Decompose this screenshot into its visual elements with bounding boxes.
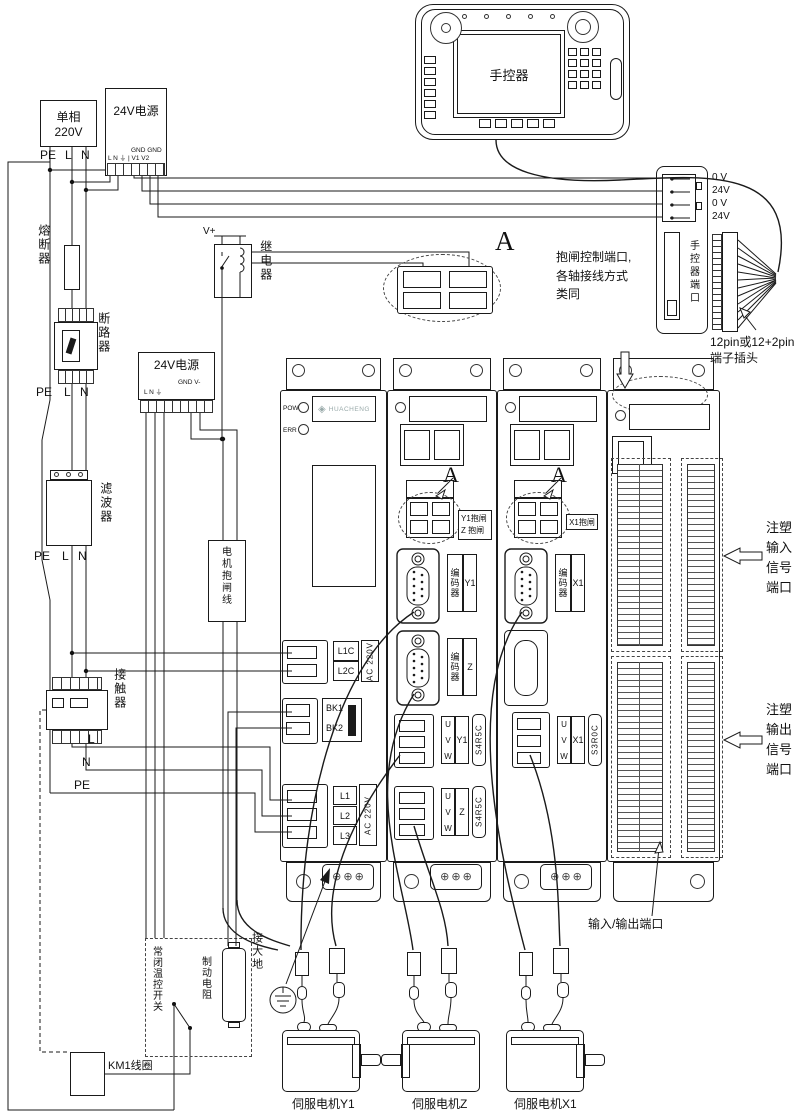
m1-bottom-hole <box>296 874 311 889</box>
port-pin-24v-a: 24V <box>712 185 730 197</box>
psu2-out-label: GND V- <box>178 379 200 386</box>
motor1-plug-a <box>297 986 307 1000</box>
m2-pwr2-u: U <box>442 789 454 805</box>
filter-screw-2 <box>66 472 71 477</box>
m4-mount-hole <box>619 364 632 377</box>
filter-pin-l: L <box>62 550 69 564</box>
filter-screw-3 <box>78 472 83 477</box>
m3-blank-cutout <box>514 640 538 696</box>
m4-output-strip-l <box>617 662 663 852</box>
motor2-power-connector <box>407 952 421 976</box>
m3-pwr1-v: V <box>558 733 570 749</box>
m2-mount-hole-r <box>470 364 483 377</box>
m2-pwr2-v: V <box>442 805 454 821</box>
motor2-flange <box>401 1044 410 1078</box>
m3-brake-label: X1抱闸 <box>566 514 598 530</box>
m2-pwr1-w: W <box>442 749 454 765</box>
m3-mount-hole <box>509 364 522 377</box>
m2-pwr2-axis: Z <box>455 788 469 836</box>
mains-pin-pe: PE <box>40 149 56 163</box>
m2-label-plate <box>409 396 487 422</box>
m2-pwr1-model: S4R5C <box>472 714 486 766</box>
mains-pin-n: N <box>81 149 90 163</box>
contactor-label: 接触器 <box>112 668 126 732</box>
psu2-terminal-strip <box>140 400 213 413</box>
m2-brake-ellipse <box>398 492 462 544</box>
m1-bk1-label: BK1 <box>326 703 343 713</box>
m1-mount-hole <box>292 364 305 377</box>
pendant-left-keys <box>424 56 436 119</box>
m4-mount-hole-r <box>692 364 705 377</box>
motor3-encoder-connector <box>553 948 569 974</box>
m2-rj45-pair <box>400 424 464 466</box>
km1-coil-label: KM1线圈 <box>108 1060 153 1073</box>
m2-pwr1-uvw: UVW <box>441 716 455 764</box>
m2-encoder-y1-db9-icon <box>396 548 440 624</box>
motor2-top-face <box>407 1037 475 1045</box>
psu1-title: 24V电源 <box>107 100 165 124</box>
m4-bottom-hole <box>690 874 705 889</box>
km1-coil-box <box>70 1052 105 1096</box>
m3-bottom-hole <box>514 874 529 889</box>
m1-brand-plate: ◈ HUACHENG <box>312 396 376 422</box>
bus-label-l: L <box>88 733 95 747</box>
psu1-pin-labels: L N ⏚ | V1 V2 <box>108 155 149 162</box>
m4-label-plate <box>629 404 710 430</box>
pendant-right-keys <box>568 48 604 89</box>
motor1-encoder-connector <box>329 948 345 974</box>
m2-enc1-axis: Y1 <box>463 554 477 612</box>
motor2-encoder-connector <box>441 948 457 974</box>
detail-a-marker: A <box>495 226 515 257</box>
filter-label: 滤波器 <box>98 482 112 542</box>
m4-output-strip-divider <box>639 662 640 852</box>
breaker-top-terminals <box>58 308 94 322</box>
m1-mains-voltage: AC 220V <box>359 784 377 846</box>
psu1-gnd-label: GND GND <box>131 147 162 154</box>
m4-io-label: 输入/输出端口 <box>588 918 663 932</box>
m4-output-strip-r <box>687 662 715 852</box>
bus-label-pe: PE <box>74 779 90 793</box>
brake-resistor-body <box>222 948 246 1022</box>
brake-cable-label: 电机抱闸线 <box>219 546 231 618</box>
m1-mains-pin1 <box>287 790 317 803</box>
earth-label: 接大地 <box>250 932 263 982</box>
m1-bk-jumper <box>348 705 356 736</box>
mains-pin-l: L <box>65 149 72 163</box>
m3-pwr1-uvw: UVW <box>557 716 571 764</box>
motor1-power-connector <box>295 952 309 976</box>
detail-a-note-1: 抱闸控制端口, <box>556 248 631 267</box>
mode-knob-center <box>441 23 451 33</box>
m3-pwr1-w: W <box>558 749 570 765</box>
plug-note-2: 端子插头 <box>710 350 794 366</box>
m1-mount-hole-r <box>362 364 375 377</box>
m1-ctrl-pin1 <box>287 646 317 659</box>
psu2-title: 24V电源 <box>140 356 213 376</box>
m1-bk-pin1 <box>286 704 310 717</box>
relay-box <box>214 244 252 298</box>
relay-label: 继电器 <box>258 240 272 302</box>
plug-12pin-body <box>722 232 738 332</box>
m3-rj45-pair <box>510 424 574 466</box>
brake-resistor-tab-bottom <box>228 1022 240 1028</box>
plug-note: 12pin或12+2pin 端子插头 <box>710 334 794 366</box>
bus-label-n: N <box>82 756 91 770</box>
m4-input-strip-divider <box>639 464 640 646</box>
motor1-flange <box>352 1044 361 1078</box>
m1-label-area <box>312 465 376 587</box>
pendant-side-wheel <box>610 58 622 100</box>
psu2-pin-labels: L N ⏚ <box>144 389 162 396</box>
motor3-plug-a <box>521 986 531 1000</box>
pendant-screen: 手控器 <box>457 34 561 114</box>
m4-input-strip-r <box>687 464 715 646</box>
m1-pow-label: POW <box>283 405 299 412</box>
m2-plate-screw <box>395 402 406 413</box>
m2-pwr2-model: S4R5C <box>472 786 486 838</box>
m3-ground-plate: ⊕⊕⊕ <box>540 864 592 890</box>
breaker-pin-l: L <box>64 386 71 400</box>
m3-label-plate <box>519 396 597 422</box>
m3-mount-hole-r <box>580 364 593 377</box>
breaker-pin-n: N <box>80 386 89 400</box>
m3-pwr1-plug <box>512 712 550 768</box>
contactor-top-terminals <box>52 677 102 690</box>
m1-bk-pin2 <box>286 722 310 735</box>
m2-encoder-z-db9-icon <box>396 630 440 706</box>
brand-logo-icon: ◈ <box>318 404 326 415</box>
m2-pwr1-u: U <box>442 717 454 733</box>
m4-output-label: 注塑输出信号端口 <box>766 700 796 781</box>
m2-pwr2-w: W <box>442 821 454 837</box>
m1-l2-label: L2 <box>333 806 357 825</box>
m1-l2c-label: L2C <box>333 661 359 681</box>
filter-pin-pe: PE <box>34 550 50 564</box>
m2-ground-plate: ⊕⊕⊕ <box>430 864 482 890</box>
m1-brand-label: HUACHENG <box>329 406 370 413</box>
contactor-body <box>46 690 108 730</box>
rj45-port-icon <box>514 430 540 460</box>
motor2-label: 伺服电机Z <box>412 1098 467 1112</box>
m3-plate-screw <box>505 402 516 413</box>
m3-enc1-axis: X1 <box>571 554 585 612</box>
motor1-plug-b <box>333 982 345 998</box>
m2-brake-label-2: Z 抱闸 <box>461 526 484 535</box>
filter-screw-1 <box>54 472 59 477</box>
m2-enc2-label: 编码器 <box>447 638 463 696</box>
port-pin-0v-a: 0 V <box>712 172 727 184</box>
mains-source-box: 单相 220V <box>40 100 97 147</box>
motor1-shaft <box>361 1054 381 1066</box>
m1-ctrl-pin2 <box>287 664 317 677</box>
m2-pwr1-v: V <box>442 733 454 749</box>
brake-resistor-tab-top <box>228 942 240 948</box>
contactor-detail-2 <box>70 698 88 708</box>
m1-l3-label: L3 <box>333 826 357 845</box>
detail-a-cell-4 <box>449 292 487 309</box>
m3-brake-ellipse <box>506 492 570 544</box>
m1-mains-pin3 <box>287 826 317 839</box>
m1-ctrl-voltage: AC 220V <box>361 640 379 682</box>
rj45-port-icon <box>434 430 460 460</box>
m1-pow-led-icon <box>298 402 309 413</box>
breaker-label: 断路器 <box>96 312 110 374</box>
port-pin-24v-b: 24V <box>712 211 730 223</box>
detail-a-cell-2 <box>449 271 487 288</box>
m2-brake-label-1: Y1抱闸 <box>461 514 487 523</box>
m4-plate-screw <box>615 410 626 421</box>
breaker-pin-pe: PE <box>36 386 52 400</box>
detail-a-note-3: 类同 <box>556 285 631 304</box>
m3-pwr1-model: S3R0C <box>588 714 602 766</box>
motor1-label: 伺服电机Y1 <box>292 1098 355 1112</box>
motor3-label: 伺服电机X1 <box>514 1098 577 1112</box>
motor2-shaft <box>381 1054 401 1066</box>
plug-note-1: 12pin或12+2pin <box>710 334 794 350</box>
relay-vplus-label: V+ <box>203 226 216 238</box>
motor1-top-face <box>287 1037 355 1045</box>
m2-pwr1-axis: Y1 <box>455 716 469 764</box>
panel-slot-notch <box>667 300 677 316</box>
motor3-plug-b <box>557 982 569 998</box>
motor2-plug-b <box>445 982 457 998</box>
m2-pwr1-plug <box>394 714 434 768</box>
filter-pin-n: N <box>78 550 87 564</box>
psu1-terminal-strip <box>107 163 165 176</box>
mains-line1: 单相 <box>56 108 80 125</box>
filter-body <box>46 480 92 546</box>
rj45-port-icon <box>404 430 430 460</box>
m4-input-strip-l <box>617 464 663 646</box>
m1-l1-label: L1 <box>333 786 357 805</box>
rj45-port-icon <box>544 430 570 460</box>
breaker-bottom-terminals <box>58 370 94 384</box>
pendant-screen-label: 手控器 <box>489 65 528 84</box>
m2-pwr2-uvw: UVW <box>441 788 455 836</box>
fuse-label: 熔断器 <box>36 224 50 296</box>
m2-bottom-hole <box>404 874 419 889</box>
m1-bk2-label: BK2 <box>326 723 343 733</box>
m3-pwr1-axis: X1 <box>571 716 585 764</box>
thermal-switch-label: 常闭温控开关 <box>150 946 162 1052</box>
mains-line2: 220V <box>54 125 82 139</box>
m1-err-label: ERR <box>283 427 297 434</box>
m1-mains-pin2 <box>287 808 317 821</box>
contactor-detail-1 <box>52 698 64 708</box>
m1-l1c-label: L1C <box>333 641 359 661</box>
pendant-indicator-row <box>458 14 558 26</box>
detail-a-cell-3 <box>403 292 441 309</box>
pendant-port-4pin-connector <box>662 174 696 222</box>
m2-enc1-label: 编码器 <box>447 554 463 612</box>
m2-mount-hole <box>399 364 412 377</box>
m2-enc2-axis: Z <box>463 638 477 696</box>
pendant-bottom-keys <box>479 119 555 128</box>
motor2-plug-a <box>409 986 419 1000</box>
motor3-top-face <box>511 1037 579 1045</box>
pendant-port-tab-2 <box>696 202 702 210</box>
motor3-power-connector <box>519 952 533 976</box>
motor3-flange <box>576 1044 585 1078</box>
pendant-port-tab-1 <box>696 182 702 190</box>
wiring-diagram: 手控器 单相 220V PE L N 熔断器 断路器 PE L N 滤波器 PE… <box>0 0 800 1117</box>
estop-button-icon <box>575 19 591 35</box>
port-pin-0v-b: 0 V <box>712 198 727 210</box>
pendant-port-label: 手控器端口 <box>687 240 699 328</box>
m1-err-led-icon <box>298 424 309 435</box>
m3-pwr1-u: U <box>558 717 570 733</box>
brake-resistor-label: 制动电阻 <box>199 956 211 1022</box>
motor3-shaft <box>585 1054 605 1066</box>
plug-12pin-teeth <box>712 234 722 330</box>
m2-pwr2-plug <box>394 786 434 840</box>
m3-enc1-label: 编码器 <box>555 554 571 612</box>
detail-a-cell-1 <box>403 271 441 288</box>
detail-a-note: 抱闸控制端口, 各轴接线方式 类同 <box>556 248 631 304</box>
m4-input-label: 注塑输入信号端口 <box>766 518 796 599</box>
detail-a-note-2: 各轴接线方式 <box>556 267 631 286</box>
m1-ground-plate: ⊕⊕⊕ <box>322 864 374 890</box>
fuse-symbol <box>64 245 80 290</box>
m3-encoder-x1-db9-icon <box>504 548 548 624</box>
